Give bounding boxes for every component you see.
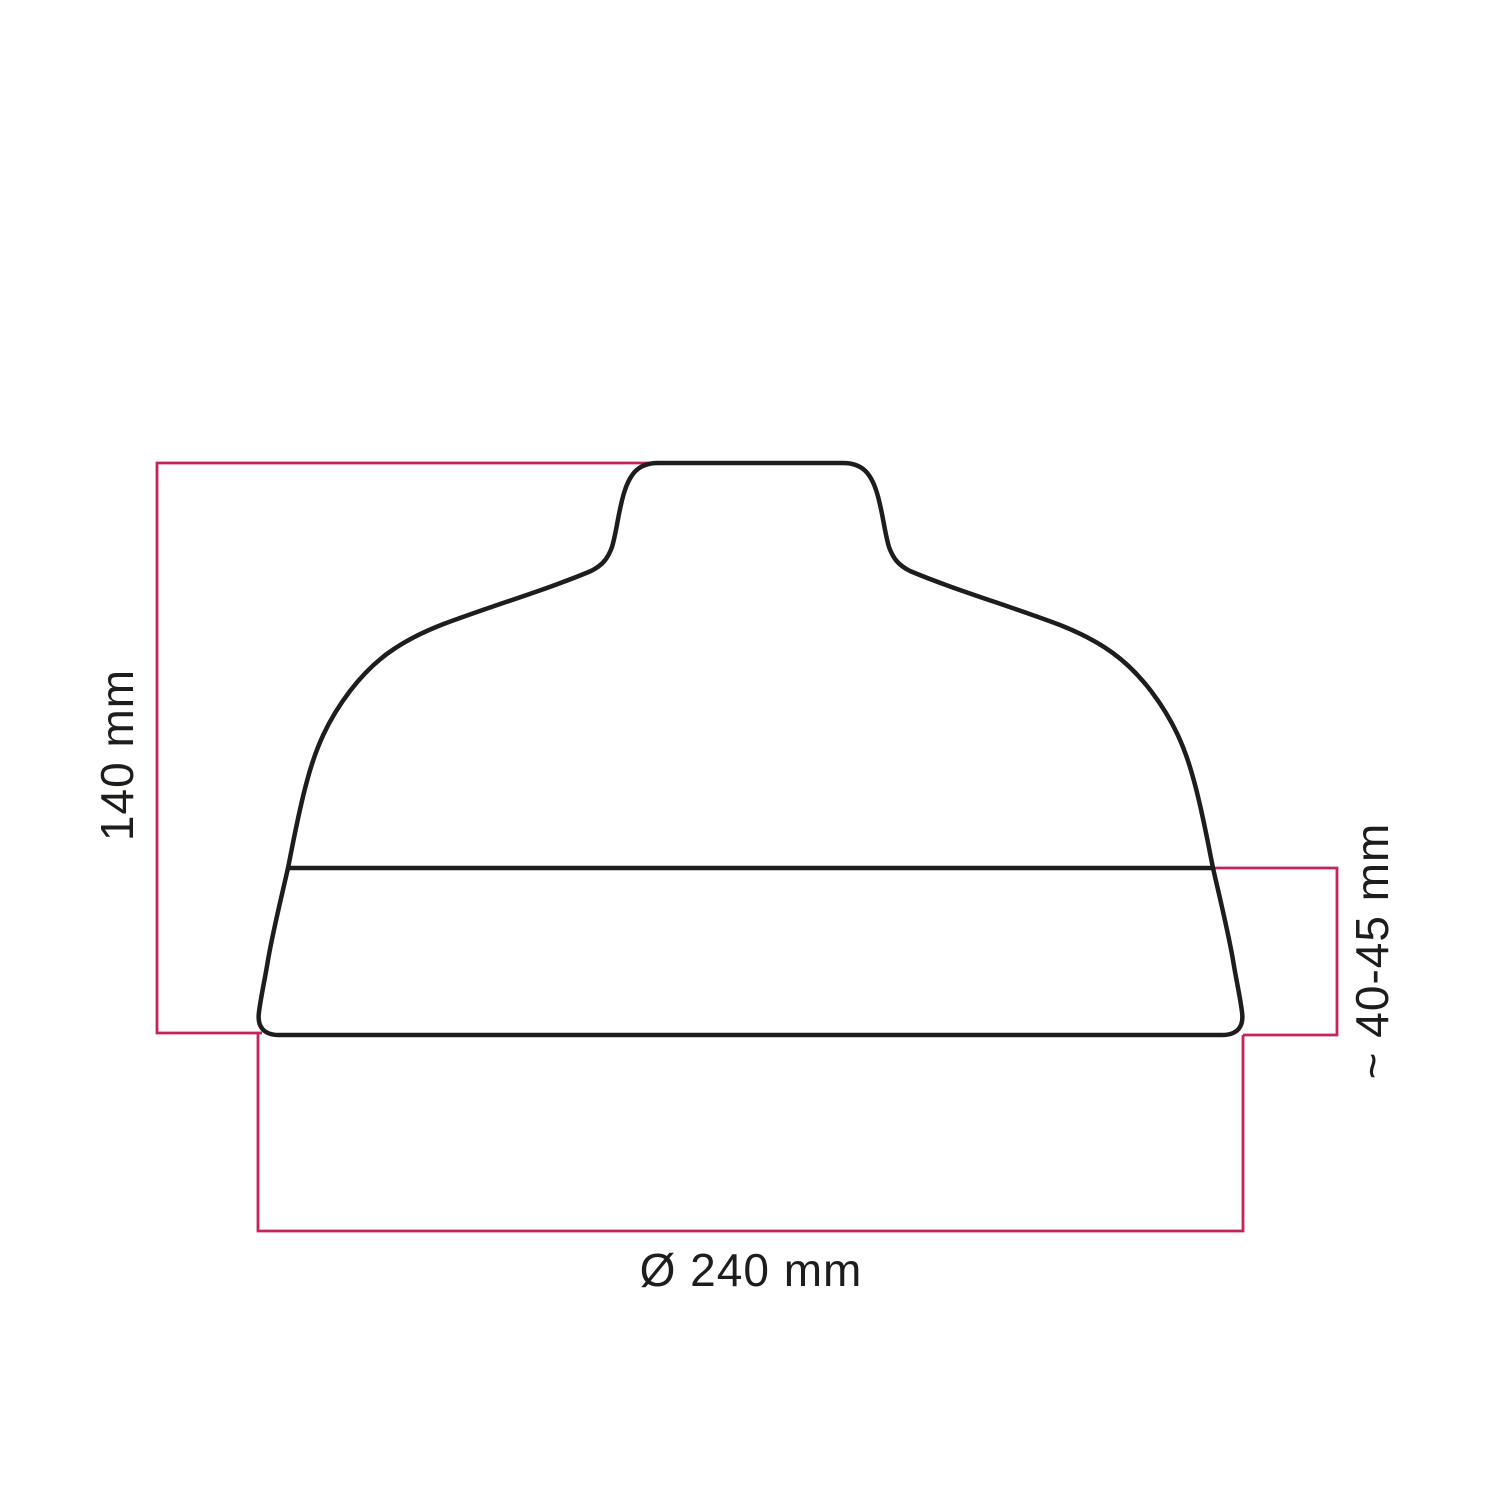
lampshade-outline xyxy=(259,463,1243,1035)
diagram-canvas: 140 mm ~ 40-45 mm Ø 240 mm xyxy=(0,0,1500,1500)
collar-height-dimension-label: ~ 40-45 mm xyxy=(1346,823,1398,1080)
diameter-dimension-line xyxy=(258,1033,1243,1231)
lampshade-outline-group xyxy=(259,463,1243,1035)
diameter-dimension-label: Ø 240 mm xyxy=(640,1244,863,1296)
height-dimension-line xyxy=(157,463,650,1033)
dimension-lines-group xyxy=(157,463,1337,1231)
lampshade-dimension-drawing: 140 mm ~ 40-45 mm Ø 240 mm xyxy=(0,0,1500,1500)
height-dimension-label: 140 mm xyxy=(91,669,143,841)
